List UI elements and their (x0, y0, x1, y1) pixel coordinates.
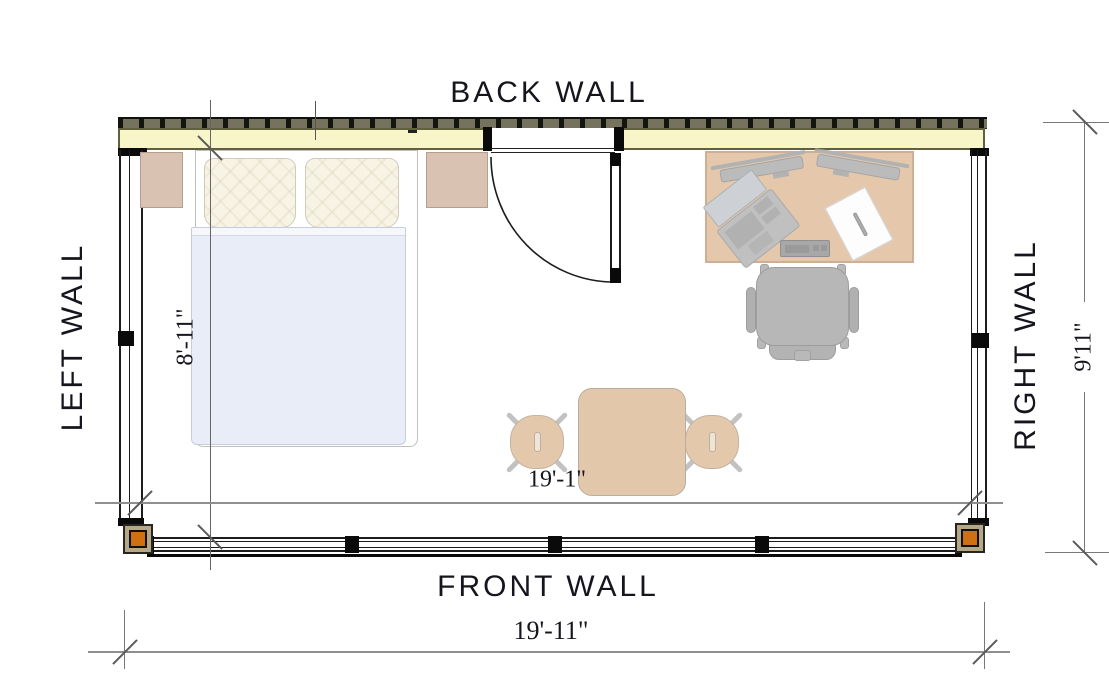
dim-extension-line (124, 610, 125, 669)
label-left-wall: LEFT WALL (56, 243, 90, 432)
label-back-wall: BACK WALL (450, 76, 648, 110)
dim-line-overall-depth (1084, 122, 1085, 302)
dim-text-interior-width: 19'-1" (528, 467, 586, 494)
door-leaf (610, 153, 621, 283)
door-leaf-cap (610, 268, 621, 283)
dim-line-depth (210, 100, 211, 570)
dim-line-overall-width (88, 651, 1010, 653)
dim-line-overall-depth (1084, 392, 1085, 553)
dim-text-overall-depth: 9'11" (1071, 322, 1098, 371)
label-right-wall: RIGHT WALL (1009, 239, 1043, 451)
door-leaf-cap (610, 153, 621, 166)
dim-text-overall-width: 19'-11" (514, 616, 589, 646)
dim-extension-line (984, 602, 985, 669)
dim-extension-line (1043, 122, 1109, 123)
dim-extension-line (1045, 552, 1109, 553)
dim-line-interior-width (95, 502, 1003, 504)
floorplan: 8'-11" 19'-1" 19'-11" 9'11" BACK WALL FR… (0, 0, 1109, 674)
dim-text-room-depth: 8'-11" (173, 308, 200, 365)
label-front-wall: FRONT WALL (437, 570, 659, 604)
